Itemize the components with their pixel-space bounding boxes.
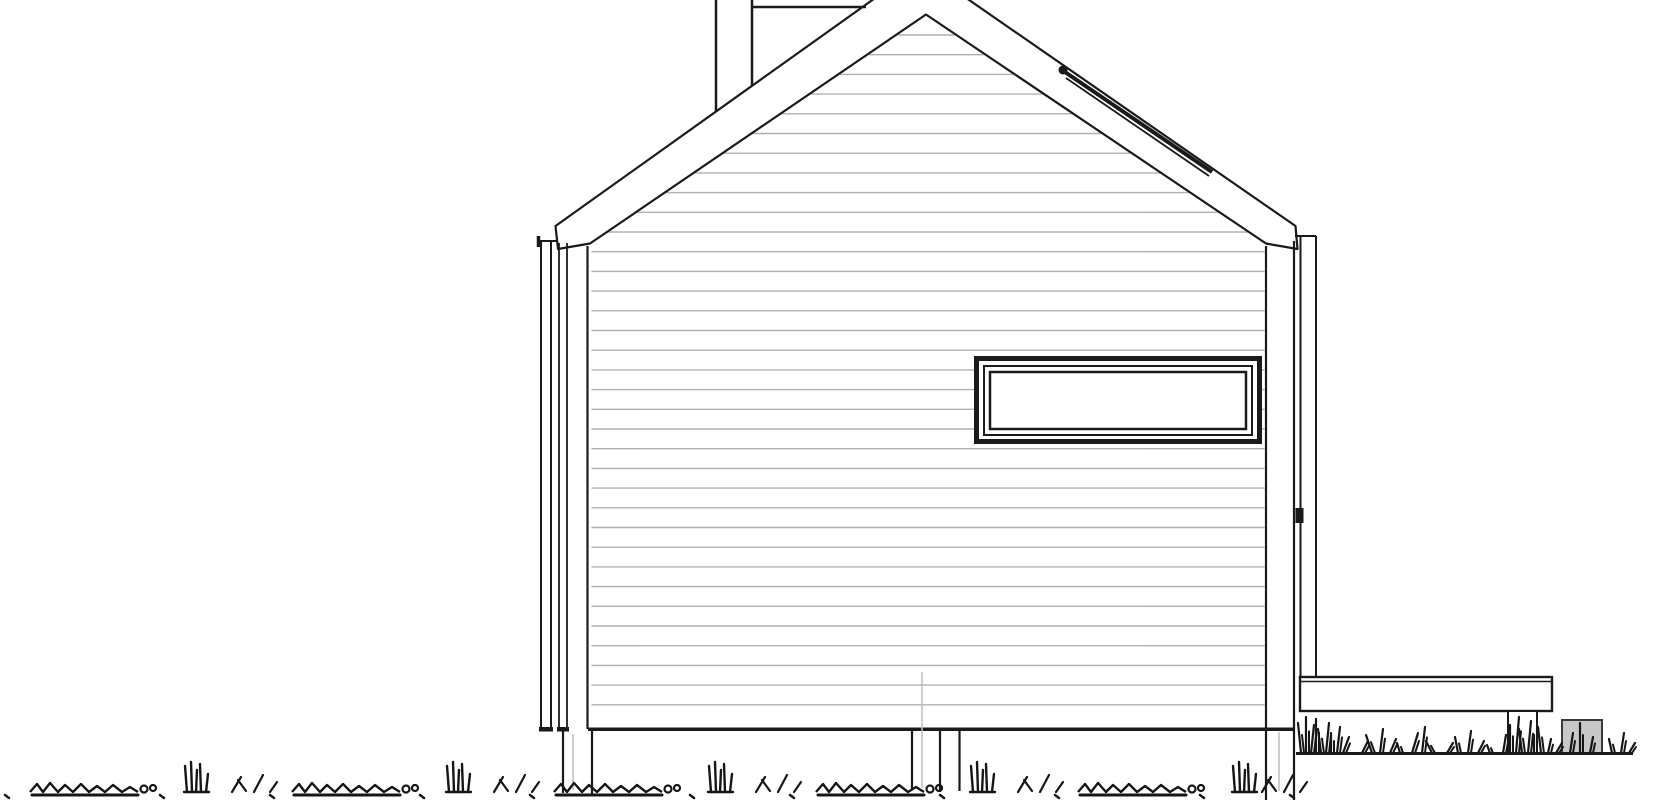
wall-base-band (588, 728, 1295, 732)
grass-tuft-blade (185, 766, 187, 792)
grass-mound-scribble (1078, 783, 1186, 792)
grass-blade (1542, 737, 1544, 753)
grass-slanted-blade (1056, 782, 1063, 792)
grass-slanted-blade (762, 780, 770, 791)
grass-tuft-blade (196, 770, 197, 792)
grass-speck (790, 795, 794, 798)
grass-speck (1200, 795, 1204, 798)
grass-slanted-blade (532, 782, 539, 792)
skylight-end-cap (1059, 66, 1068, 75)
grass-seed-head (412, 785, 418, 791)
grass-tuft-blade (1248, 764, 1249, 792)
grass-blade (1609, 739, 1612, 753)
left-trim-bottom-cap-b (557, 727, 569, 732)
grass-tuft-blade (992, 774, 994, 792)
grass-slanted-blade (254, 775, 263, 792)
grass-speck (530, 795, 534, 798)
grass-slanted-blade (1018, 777, 1027, 792)
grass-tuft-blade (200, 764, 201, 792)
grass-slanted-blade (756, 777, 765, 792)
grass-speck (420, 795, 424, 798)
grass-seed-head (927, 786, 934, 793)
grass-tuft-blade (982, 770, 983, 792)
grass-blade (1551, 745, 1553, 753)
grass-blade (1425, 737, 1427, 753)
grass-tuft-blade (447, 766, 449, 792)
grass-tuft-blade (1254, 774, 1256, 792)
grass-blade (1302, 735, 1304, 753)
grass-blade (1298, 723, 1301, 753)
grass-slanted-blade (270, 782, 277, 792)
grass-tuft-blade (724, 764, 725, 792)
grass-slanted-blade (238, 780, 246, 791)
grass-slanted-blade (1040, 775, 1049, 792)
grass-tuft-blade (462, 764, 463, 792)
grass-tuft-blade (971, 766, 973, 792)
grass-blade (1455, 737, 1458, 753)
grass-slanted-blade (1268, 780, 1276, 791)
grass-speck (270, 795, 274, 798)
grass-slanted-blade (232, 777, 241, 792)
elevation-drawing-svg (0, 0, 1670, 800)
window-inner-frame (990, 372, 1246, 429)
grass-mound-scribble (554, 783, 662, 792)
grass-tuft-blade (1239, 762, 1240, 792)
grass-slanted-blade (494, 777, 503, 792)
grass-tuft-blade (709, 766, 711, 792)
grass-seed-head (1189, 786, 1196, 793)
grass-slanted-blade (794, 782, 801, 792)
grass-blade (1397, 743, 1400, 753)
grass-slanted-blade (500, 780, 508, 791)
grass-blade (1383, 739, 1385, 753)
grass-slanted-blade (1024, 780, 1032, 791)
grass-mound-scribble (816, 783, 924, 792)
grass-tuft-blade (206, 774, 208, 792)
grass-slanted-blade (778, 775, 787, 792)
grass-blade (1459, 743, 1461, 753)
grass-slanted-blade (1300, 782, 1307, 792)
grass-seed-head (674, 785, 680, 791)
left-trim-bottom-cap-a (539, 727, 553, 732)
grass-tuft-blade (458, 770, 459, 792)
grass-blade (1322, 739, 1324, 753)
grass-speck (940, 795, 944, 798)
grass-tuft-blade (191, 762, 192, 792)
grass-blade (1538, 727, 1541, 753)
grass-blade (1487, 745, 1490, 753)
grass-slanted-blade (1284, 775, 1293, 792)
grass-tuft-blade (715, 762, 716, 792)
grass-seed-head (665, 786, 672, 793)
grass-blade (1340, 737, 1342, 753)
grass-blade (1624, 741, 1626, 753)
grass-mound-scribble (30, 783, 138, 792)
grass-seed-head (141, 786, 148, 793)
grass-seed-head (403, 786, 410, 793)
grass-mound-scribble (292, 783, 400, 792)
elevation-drawing (0, 0, 1670, 800)
left-lawn-grass (5, 762, 1307, 798)
grass-tuft-blade (468, 774, 470, 792)
grass-tuft-blade (453, 762, 454, 792)
grass-tuft-blade (986, 764, 987, 792)
grass-seed-head (150, 785, 156, 791)
grass-speck (5, 795, 9, 798)
grass-seed-head (1198, 785, 1204, 791)
grass-tuft-blade (1233, 766, 1235, 792)
grass-blade (1471, 740, 1473, 753)
grass-speck (160, 795, 164, 798)
right-downspout-bracket (1296, 508, 1304, 523)
grass-tuft-blade (1244, 770, 1245, 792)
grass-slanted-blade (516, 775, 525, 792)
grass-speck (690, 795, 694, 798)
grass-blade (1613, 745, 1615, 753)
grass-tuft-blade (720, 770, 721, 792)
grass-tuft-blade (977, 762, 978, 792)
grass-tuft-blade (730, 774, 732, 792)
grass-speck (1055, 795, 1059, 798)
